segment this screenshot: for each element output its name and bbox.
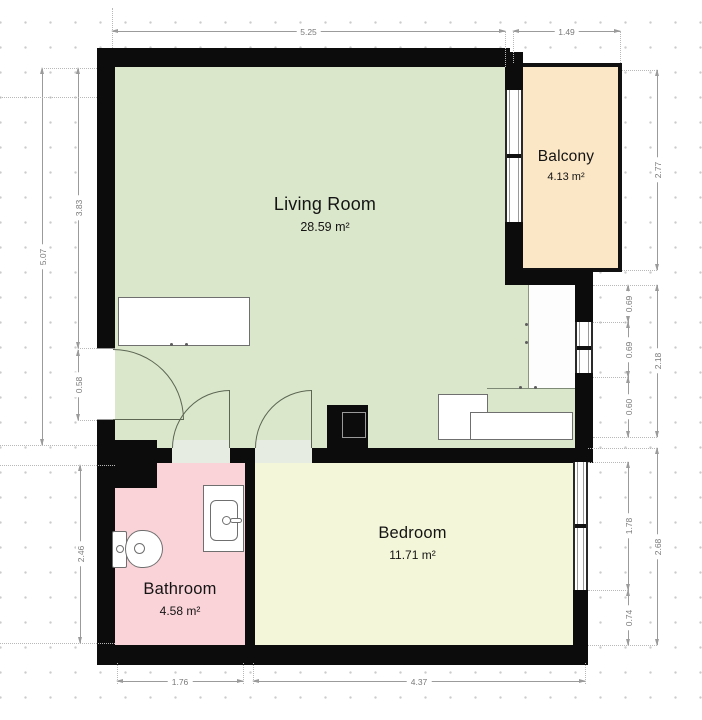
bathroom-label-block: Bathroom 4.58 m²	[115, 580, 245, 618]
extension-line	[112, 8, 113, 48]
extension-line	[0, 445, 97, 446]
dimension-left-bathroom: 2.46	[80, 465, 81, 643]
extension-line	[513, 31, 514, 63]
dimension-left-total: 5.07	[42, 68, 43, 445]
dimension-left-upper: 3.83	[78, 68, 79, 348]
extension-line	[622, 70, 657, 71]
extension-line	[0, 97, 97, 98]
wall-left-upper	[97, 48, 115, 348]
wall-right-mid-lower	[575, 373, 593, 448]
wall-right-bedroom-lower	[573, 590, 588, 645]
extension-line	[505, 31, 506, 67]
wall-mid-pier	[230, 448, 255, 463]
dimension-right-window-mid: 0.69	[628, 322, 629, 377]
extension-line	[78, 348, 97, 349]
extension-line	[253, 663, 254, 684]
floor-plan: Living Room 28.59 m² Balcony 4.13 m² Bed…	[0, 0, 702, 720]
hall-counter-line	[487, 388, 575, 389]
extension-line	[588, 645, 657, 646]
dimension-right-bedroom-wall: 0.74	[628, 590, 629, 645]
bedroom-window	[573, 462, 588, 590]
wall-mid-segment-right	[312, 448, 593, 463]
extension-line	[588, 448, 657, 449]
living-room-label-block: Living Room 28.59 m²	[230, 194, 420, 234]
partition-handle-dot	[525, 341, 528, 344]
bedroom-label-block: Bedroom 11.71 m²	[340, 524, 485, 562]
extension-line	[243, 663, 244, 684]
room-area: 4.58 m²	[115, 604, 245, 618]
extension-line	[593, 322, 628, 323]
extension-line	[0, 465, 115, 466]
extension-line	[585, 663, 586, 684]
room-name: Bathroom	[115, 580, 245, 599]
extension-line	[42, 68, 97, 69]
shaft	[327, 405, 368, 448]
room-name: Balcony	[516, 148, 616, 166]
dimension-right-bedroom-total: 2.68	[657, 448, 658, 645]
extension-line	[622, 270, 657, 271]
wall-balcony-bottom-bar	[505, 270, 593, 285]
dimension-top-living: 5.25	[112, 31, 505, 32]
toilet-flush-button	[116, 545, 124, 553]
balcony-label-block: Balcony 4.13 m²	[516, 148, 616, 183]
dimension-right-bedroom-window: 1.78	[628, 462, 629, 590]
island-handle-dot	[185, 343, 188, 346]
dimension-top-balcony: 1.49	[513, 31, 620, 32]
wall-bathroom-notch	[97, 440, 157, 488]
wall-top	[97, 48, 510, 67]
living-room-right-window	[575, 322, 593, 373]
dimension-right-mid-total: 2.18	[657, 285, 658, 437]
kitchen-island	[118, 297, 250, 346]
room-area: 28.59 m²	[230, 220, 420, 234]
extension-line	[117, 663, 118, 684]
dimension-bottom-bedroom: 4.37	[253, 681, 585, 682]
room-name: Living Room	[230, 194, 420, 215]
wall-right-mid-upper	[575, 285, 593, 322]
extension-line	[593, 285, 657, 286]
window-mullion-tick	[577, 346, 591, 350]
sink-faucet-spout	[230, 518, 242, 523]
room-area: 4.13 m²	[516, 171, 616, 183]
wall-bottom	[97, 645, 588, 665]
extension-line	[78, 420, 97, 421]
shaft-inner-outline	[342, 412, 366, 438]
extension-line	[0, 643, 115, 644]
counter-handle-dot	[534, 386, 537, 389]
window-mullion-tick	[575, 524, 586, 528]
extension-line	[620, 31, 621, 63]
counter-handle-dot	[519, 386, 522, 389]
dimension-left-door: 0.58	[78, 350, 79, 420]
toilet-drain	[134, 543, 145, 554]
dimension-right-lower-seg: 0.60	[628, 377, 629, 437]
dimension-bottom-bathroom: 1.76	[117, 681, 243, 682]
dimension-right-upper-seg: 0.69	[628, 285, 629, 322]
wall-right-bedroom-upper	[573, 448, 588, 462]
dimension-right-balcony: 2.77	[657, 70, 658, 270]
extension-line	[593, 437, 657, 438]
wall-bathroom-bedroom	[245, 462, 255, 645]
cabinet-right	[470, 412, 573, 440]
room-name: Bedroom	[340, 524, 485, 543]
partition-handle-dot	[525, 323, 528, 326]
extension-line	[588, 590, 628, 591]
extension-line	[593, 377, 628, 378]
wall-balcony-left-upper	[505, 52, 523, 90]
island-handle-dot	[170, 343, 173, 346]
extension-line	[588, 462, 628, 463]
room-area: 11.71 m²	[340, 548, 485, 562]
hall-niche	[528, 285, 576, 389]
